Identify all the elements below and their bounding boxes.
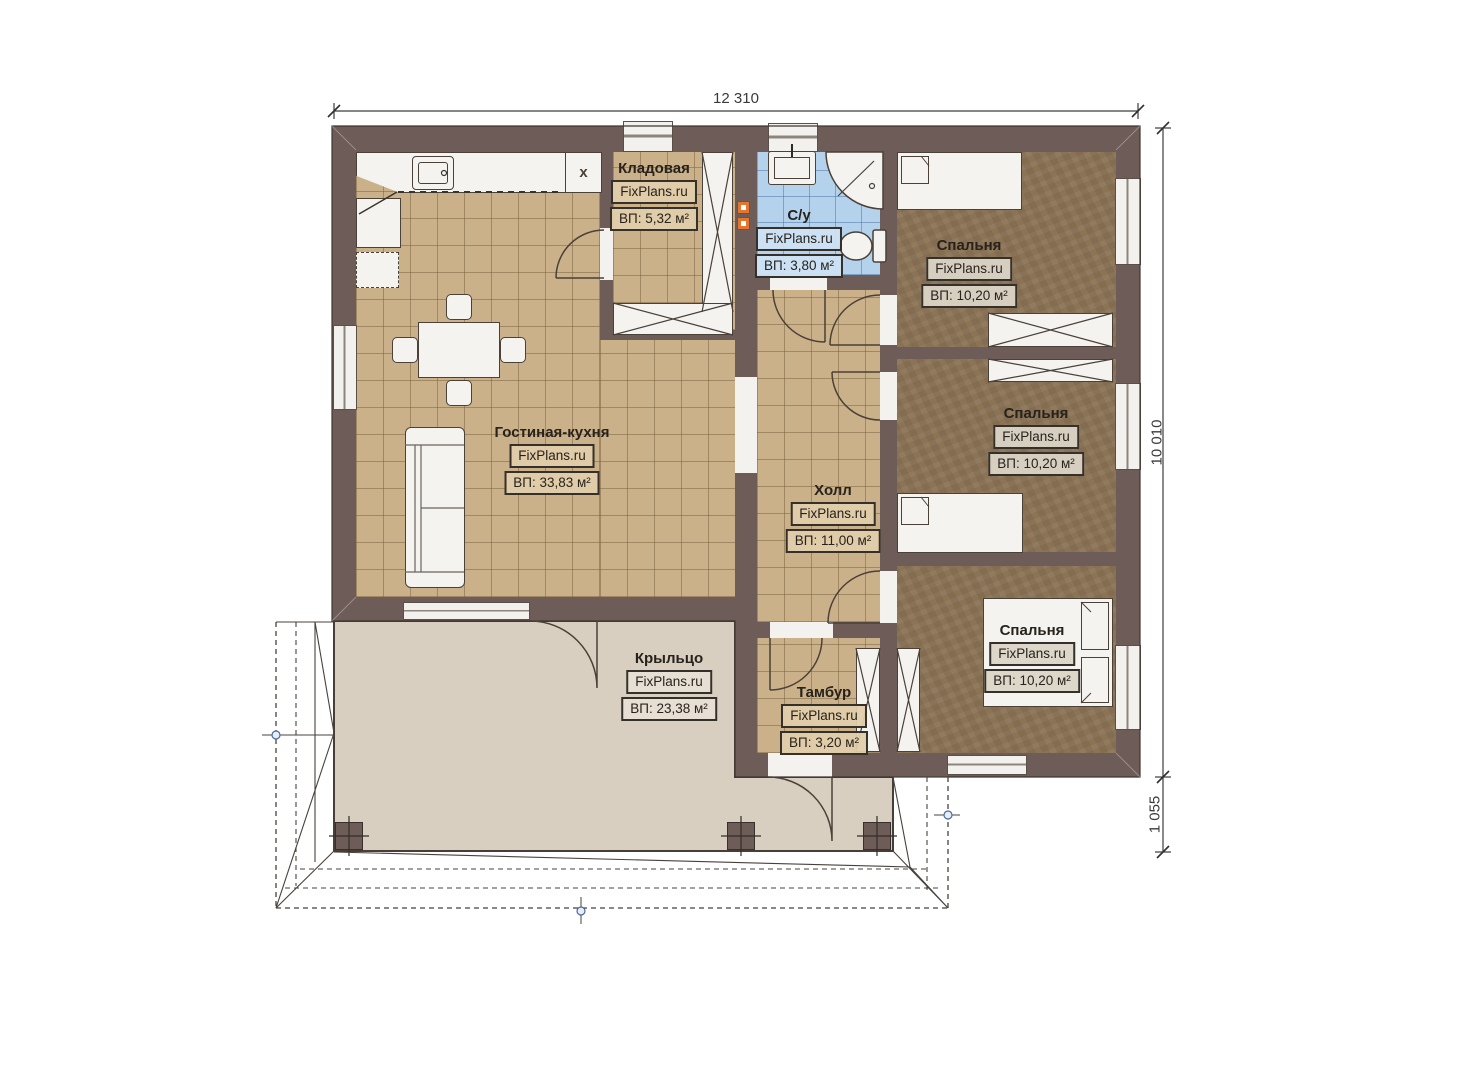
room-name: Спальня — [984, 622, 1080, 639]
door-storage — [556, 230, 604, 278]
room-label-living-kitchen: Гостиная-кухня FixPlans.ru ВП: 33,83 м² — [495, 424, 610, 495]
room-label-bedroom-bottom: Спальня FixPlans.ru ВП: 10,20 м² — [984, 622, 1080, 693]
sofa-lines — [405, 445, 464, 572]
area-badge: ВП: 10,20 м² — [988, 452, 1084, 476]
dimension-right: 10 010 — [1149, 408, 1166, 478]
area-badge: ВП: 33,83 м² — [504, 471, 600, 495]
brand-badge: FixPlans.ru — [926, 257, 1012, 281]
room-label-vestibule: Тамбур FixPlans.ru ВП: 3,20 м² — [780, 684, 868, 755]
brand-badge: FixPlans.ru — [509, 444, 595, 468]
room-name: Крыльцо — [621, 650, 717, 667]
shower — [826, 152, 883, 209]
room-name: Гостиная-кухня — [495, 424, 610, 441]
column-cross-ticks — [329, 816, 897, 856]
area-badge: ВП: 3,20 м² — [780, 731, 868, 755]
dimension-right-bottom: 1 055 — [1147, 780, 1164, 850]
room-name: Спальня — [988, 405, 1084, 422]
area-badge: ВП: 3,80 м² — [755, 254, 843, 278]
brand-badge: FixPlans.ru — [790, 502, 876, 526]
room-label-storage: Кладовая FixPlans.ru ВП: 5,32 м² — [610, 160, 698, 231]
door-entrance — [768, 777, 832, 841]
door-bedroom-top — [830, 295, 880, 345]
room-label-bedroom-middle: Спальня FixPlans.ru ВП: 10,20 м² — [988, 405, 1084, 476]
room-label-bathroom: С/у FixPlans.ru ВП: 3,80 м² — [755, 207, 843, 278]
room-name: С/у — [755, 207, 843, 224]
brand-badge: FixPlans.ru — [781, 704, 867, 728]
room-label-bedroom-top: Спальня FixPlans.ru ВП: 10,20 м² — [921, 237, 1017, 308]
room-name: Кладовая — [610, 160, 698, 177]
toilet — [840, 230, 886, 262]
brand-badge: FixPlans.ru — [626, 670, 712, 694]
brand-badge: FixPlans.ru — [993, 425, 1079, 449]
room-label-porch: Крыльцо FixPlans.ru ВП: 23,38 м² — [621, 650, 717, 721]
room-label-hall: Холл FixPlans.ru ВП: 11,00 м² — [786, 482, 881, 553]
area-badge: ВП: 5,32 м² — [610, 207, 698, 231]
door-living-porch — [530, 621, 597, 688]
dimension-ticks — [328, 105, 1169, 858]
area-badge: ВП: 10,20 м² — [921, 284, 1017, 308]
area-badge: ВП: 23,38 м² — [621, 697, 717, 721]
room-name: Спальня — [921, 237, 1017, 254]
room-name: Холл — [786, 482, 881, 499]
plan-linework — [0, 0, 1473, 1080]
roof-nodes — [262, 731, 960, 924]
area-badge: ВП: 10,20 м² — [984, 669, 1080, 693]
room-name: Тамбур — [780, 684, 868, 701]
dimension-top: 12 310 — [713, 90, 759, 107]
door-bedroom-bottom — [828, 571, 880, 623]
brand-badge: FixPlans.ru — [756, 227, 842, 251]
dimension-lines — [334, 103, 1171, 852]
brand-badge: FixPlans.ru — [611, 180, 697, 204]
sink-faucet-icon — [442, 171, 447, 176]
roof-overhang-lines — [276, 622, 948, 908]
door-vestibule — [770, 638, 822, 690]
area-badge: ВП: 11,00 м² — [786, 529, 881, 553]
door-bedroom-middle — [832, 372, 880, 420]
door-bathroom — [773, 290, 825, 342]
floor-plan: x — [0, 0, 1473, 1080]
brand-badge: FixPlans.ru — [989, 642, 1075, 666]
counter-edge — [359, 192, 562, 214]
